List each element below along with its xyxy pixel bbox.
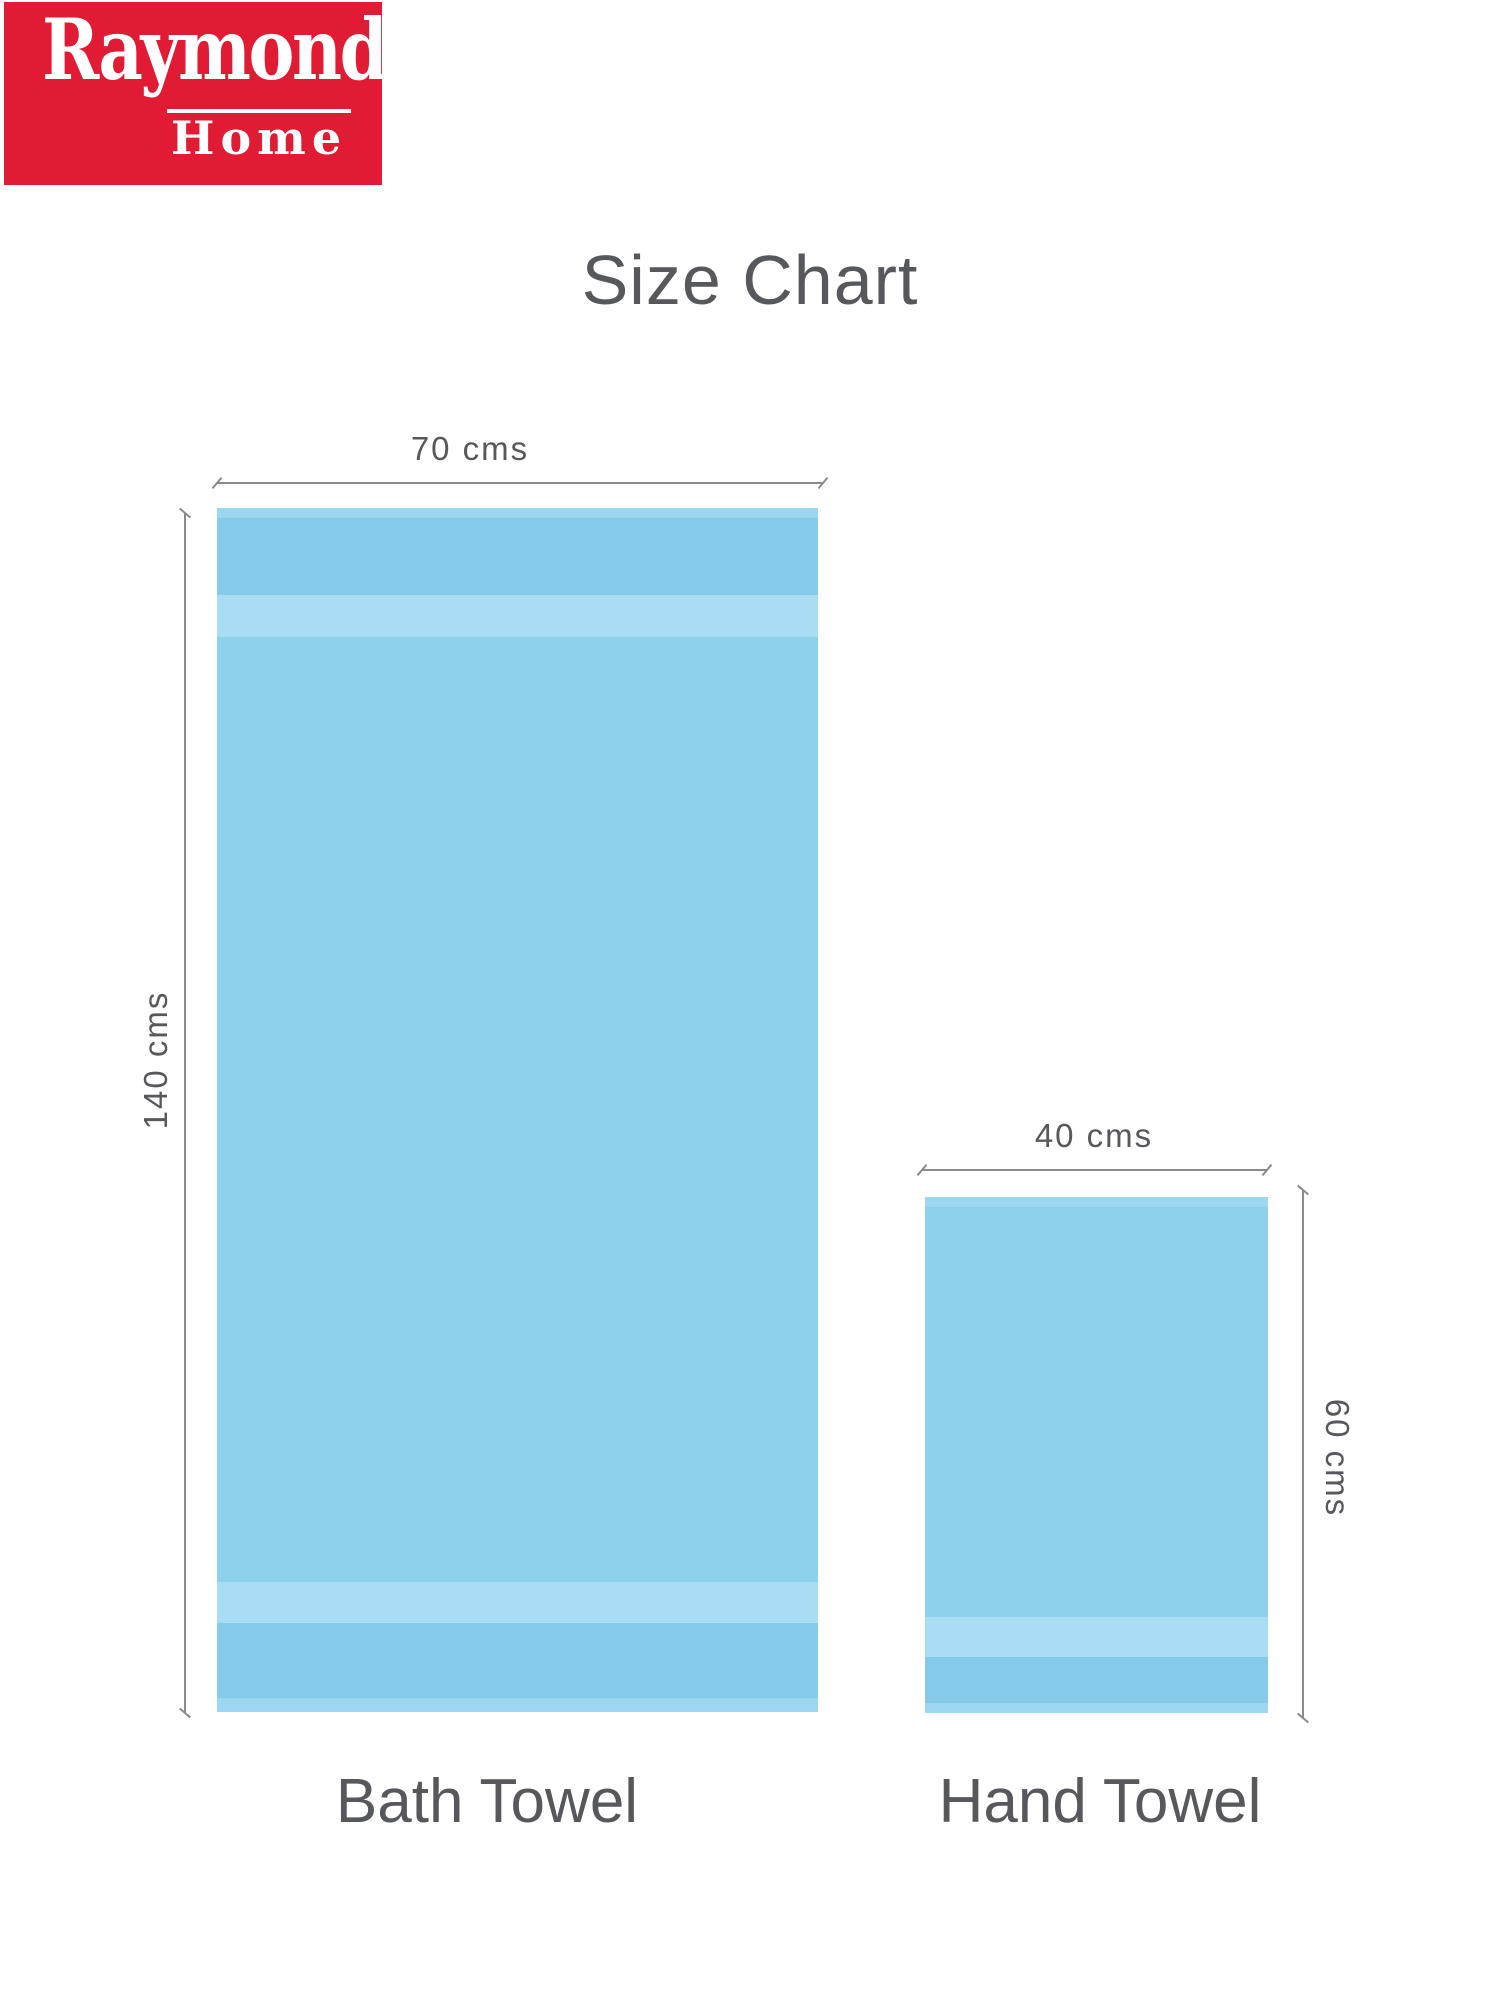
towel-top-edge — [217, 508, 818, 518]
towel-bottom-band — [217, 1623, 818, 1698]
towel-bottom-band — [925, 1657, 1268, 1703]
brand-name: Raymond — [42, 4, 385, 96]
bath-towel-name-label: Bath Towel — [336, 1766, 638, 1837]
hand-towel-swatch — [925, 1197, 1268, 1713]
bath-towel-width-dimension-line — [217, 482, 823, 484]
dimension-tick — [212, 477, 223, 489]
hand-towel-width-label: 40 cms — [1035, 1117, 1153, 1155]
towel-bottom-stripe — [925, 1617, 1268, 1657]
hand-towel-height-label: 60 cms — [1318, 1399, 1356, 1517]
page-title: Size Chart — [0, 240, 1500, 320]
towel-bottom-edge — [217, 1698, 818, 1712]
dimension-tick — [917, 1164, 928, 1176]
brand-sub-name: Home — [167, 109, 351, 162]
hand-towel-height-dimension-line — [1302, 1190, 1304, 1718]
dimension-tick — [1297, 1713, 1309, 1724]
dimension-tick — [1297, 1185, 1309, 1196]
towel-body — [925, 1207, 1268, 1617]
hand-towel-width-dimension-line — [922, 1169, 1267, 1171]
towel-body — [217, 637, 818, 1582]
dimension-tick — [179, 508, 191, 519]
bath-towel-height-label: 140 cms — [137, 991, 175, 1130]
bath-towel-width-label: 70 cms — [411, 430, 529, 468]
dimension-tick — [818, 477, 829, 489]
towel-bottom-stripe — [217, 1582, 818, 1623]
towel-top-stripe — [217, 595, 818, 637]
size-chart-page: Raymond Home Size Chart 70 cms 140 cms B… — [0, 0, 1500, 2000]
bath-towel-height-dimension-line — [184, 513, 186, 1713]
dimension-tick — [1262, 1164, 1273, 1176]
towel-top-edge — [925, 1197, 1268, 1207]
bath-towel-swatch — [217, 508, 818, 1712]
towel-top-band — [217, 518, 818, 595]
hand-towel-name-label: Hand Towel — [939, 1766, 1262, 1837]
towel-bottom-edge — [925, 1703, 1268, 1713]
dimension-tick — [179, 1708, 191, 1719]
raymond-home-logo: Raymond Home — [4, 2, 382, 185]
